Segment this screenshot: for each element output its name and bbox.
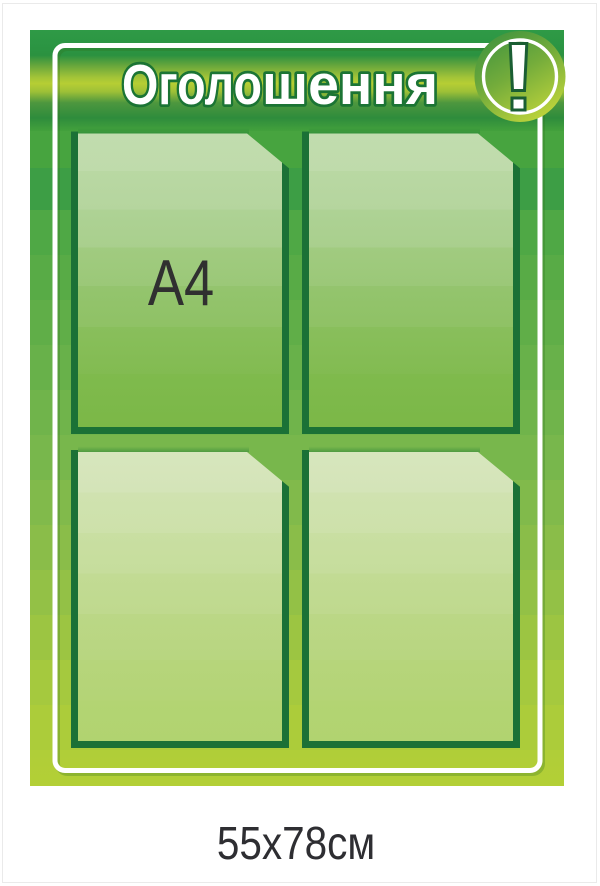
svg-text:Оголошення: Оголошення xyxy=(122,53,438,117)
svg-text:A4: A4 xyxy=(148,246,214,319)
svg-text:55х78см: 55х78см xyxy=(217,819,375,870)
